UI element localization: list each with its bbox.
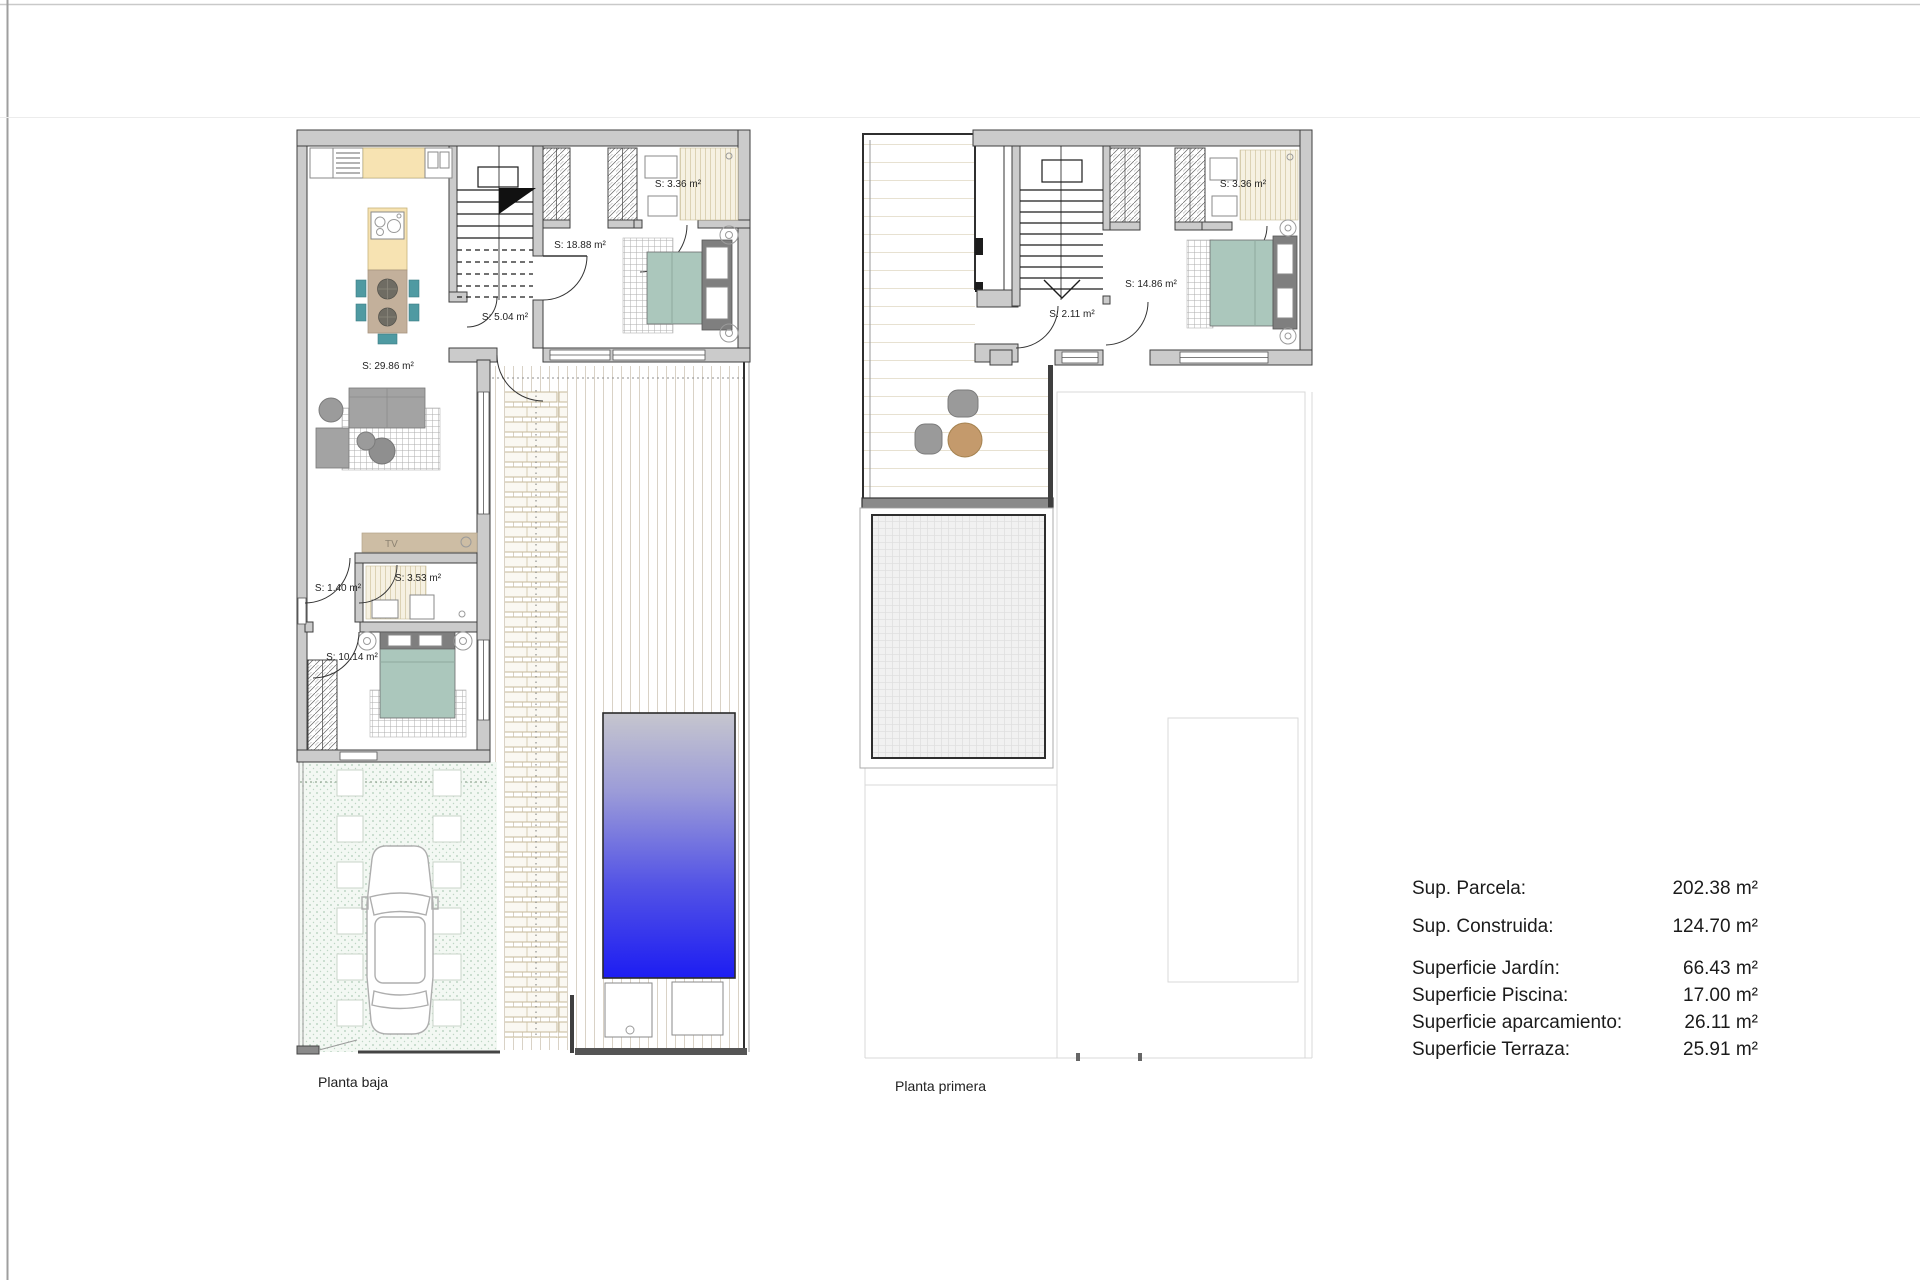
- bedroom-second: [308, 632, 472, 750]
- floor-plans-drawing: TV: [0, 0, 1920, 1280]
- summary-value: 17.00 m²: [1683, 985, 1758, 1007]
- pillow: [419, 635, 442, 646]
- summary-row: Sup. Construida: 124.70 m²: [1412, 916, 1758, 938]
- summary-label: Superficie Jardín:: [1412, 958, 1560, 980]
- terrace-chair: [915, 424, 942, 454]
- stairs-ground: [457, 146, 536, 300]
- door-arc-bedroom: [1106, 302, 1148, 345]
- terrace-table: [948, 423, 982, 457]
- kitchen: [310, 148, 452, 344]
- summary-row: Superficie aparcamiento: 26.11 m²: [1412, 1012, 1758, 1034]
- deck-wall-stub: [570, 995, 574, 1053]
- pergola-roof: [860, 508, 1053, 768]
- summary-value: 66.43 m²: [1683, 958, 1758, 980]
- stairs-direction-arrow: [499, 188, 536, 214]
- room-label: S: 29.86 m²: [362, 361, 414, 372]
- gate-post: [297, 1046, 319, 1054]
- pool-pad-left: [605, 983, 652, 1037]
- bed: [380, 649, 455, 718]
- summary-value: 26.11 m²: [1684, 1012, 1758, 1034]
- cooktop: [371, 212, 404, 239]
- summary-label: Superficie aparcamiento:: [1412, 1012, 1622, 1034]
- pool: [603, 713, 735, 978]
- summary-row: Superficie Jardín: 66.43 m²: [1412, 958, 1758, 980]
- summary-label: Sup. Construida:: [1412, 916, 1554, 938]
- room-label: S: 3.36 m²: [655, 179, 702, 190]
- floor-plan-first: S: 2.11 m² S: 14.86 m² S: 3.36 m² Planta…: [860, 130, 1312, 1094]
- deck-area: [490, 362, 749, 1055]
- sink: [372, 600, 398, 618]
- summary-label: Sup. Parcela:: [1412, 878, 1526, 900]
- floor-plan-ground: TV: [297, 130, 750, 1090]
- door-arc-storage: [305, 558, 350, 603]
- terrace-glazing: [975, 146, 1004, 292]
- summary-value: 124.70 m²: [1672, 916, 1758, 938]
- summary-row: Superficie Terraza: 25.91 m²: [1412, 1039, 1758, 1061]
- car: [362, 846, 438, 1034]
- garden-area: [297, 762, 500, 1054]
- rug: [1187, 240, 1213, 328]
- summary-row: Superficie Piscina: 17.00 m²: [1412, 985, 1758, 1007]
- room-label: S: 10.14 m²: [326, 652, 378, 663]
- summary-value: 25.91 m²: [1683, 1039, 1758, 1061]
- drain-icon: [459, 611, 465, 617]
- tv-unit: [362, 533, 477, 552]
- summary-label: Superficie Terraza:: [1412, 1039, 1570, 1061]
- toilet: [410, 595, 434, 619]
- summary-label: Superficie Piscina:: [1412, 985, 1568, 1007]
- deck-bottom-wall: [575, 1048, 747, 1055]
- side-table: [319, 398, 343, 422]
- pillow: [1277, 288, 1293, 318]
- room-label: S: 3.36 m²: [1220, 179, 1267, 190]
- tick: [1076, 1053, 1080, 1061]
- room-label: S: 14.86 m²: [1125, 279, 1177, 290]
- oven-stack: [333, 148, 363, 178]
- terrace: [862, 133, 1053, 508]
- pillow: [1277, 244, 1293, 274]
- stairs-first: [1020, 146, 1103, 300]
- bed: [1210, 240, 1273, 326]
- dishwasher: [310, 148, 333, 178]
- summary-row: Sup. Parcela: 202.38 m²: [1412, 878, 1758, 900]
- tick: [1138, 1053, 1142, 1061]
- room-label: S: 1.40 m²: [315, 583, 362, 594]
- room-label: S: 2.11 m²: [1049, 309, 1095, 320]
- bed: [647, 252, 702, 324]
- terrace-side-wall: [1048, 365, 1053, 508]
- bedroom-first: [1187, 220, 1297, 344]
- pillow: [706, 287, 728, 319]
- room-label: S: 3.53 m²: [395, 573, 442, 584]
- pillow: [706, 247, 728, 279]
- plan-title-ground: Planta baja: [318, 1074, 388, 1090]
- tv-label: TV: [385, 539, 398, 550]
- room-label: S: 5.04 m²: [482, 312, 529, 323]
- plan-title-first: Planta primera: [895, 1078, 986, 1094]
- pouf: [357, 432, 375, 450]
- terrace-edge-wall: [862, 498, 1053, 508]
- terrace-chair: [948, 390, 978, 417]
- wardrobes: [1110, 148, 1205, 222]
- pillow: [388, 635, 411, 646]
- pool-pad-right: [672, 982, 723, 1035]
- sink: [425, 148, 452, 178]
- drawing-sheet: TV: [0, 0, 1920, 1280]
- wardrobes: [543, 148, 637, 220]
- counter: [363, 148, 425, 178]
- summary-value: 202.38 m²: [1672, 878, 1758, 900]
- room-label: S: 18.88 m²: [554, 240, 606, 251]
- armchair: [316, 428, 349, 468]
